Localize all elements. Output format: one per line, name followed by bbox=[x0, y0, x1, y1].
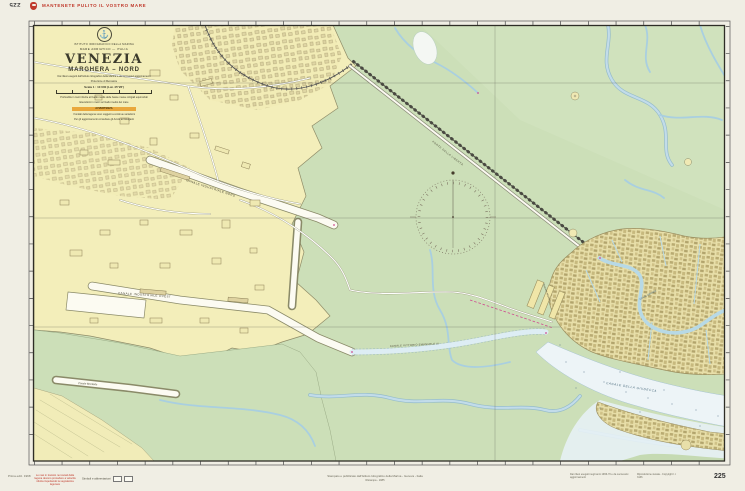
depth-note: Profondità in metri riferite al livello … bbox=[38, 96, 170, 99]
copyright-note: Riproduzione vietata - Copyright I.I. 31… bbox=[637, 473, 681, 479]
chart-subtitle: MARGHERA – NORD bbox=[38, 67, 170, 73]
imprint: Stampato e pubblicato dall'Istituto Idro… bbox=[280, 475, 470, 482]
anchor-emblem-icon: ⚓ bbox=[97, 27, 112, 42]
symbols-note-text: Simboli e abbreviazioni bbox=[82, 476, 111, 480]
region-label: MARE ADRIATICO — ITALIA bbox=[38, 47, 170, 51]
height-note: Elevazioni in metri sul livello medio de… bbox=[38, 101, 170, 104]
advisory-text: I fondali della laguna sono soggetti a c… bbox=[38, 113, 170, 116]
symbols-note: Simboli e abbreviazioni bbox=[82, 476, 133, 482]
symbol-box-icon bbox=[113, 476, 122, 482]
clean-sea-slogan: MANTENETE PULITO IL VOSTRO MARE bbox=[42, 3, 146, 8]
advisory-banner: AVVERTENZA bbox=[72, 107, 136, 111]
clean-sea-icon bbox=[30, 2, 37, 10]
projection-note: Proiezione di Mercatore bbox=[38, 80, 170, 83]
islet bbox=[681, 440, 691, 450]
title-block: ⚓ ISTITUTO IDROGRAFICO DELLA MARINA MARE… bbox=[38, 27, 170, 121]
scale-bar bbox=[56, 90, 152, 94]
symbol-box-icon bbox=[124, 476, 133, 482]
update-note: Per gli aggiornamenti consultare gli Avv… bbox=[38, 118, 170, 121]
chart-number-top: 225 bbox=[9, 1, 21, 7]
survey-note: Dai rilievi eseguiti negli anni 1966-70 … bbox=[570, 473, 632, 479]
imprint-line2: Ristampa - 1985 bbox=[280, 479, 470, 482]
red-warning-note: Le navi in transito nei canali della lag… bbox=[32, 474, 78, 486]
scale-label: Scala 1 : 10 000 (Lat. 45°26') bbox=[38, 85, 170, 89]
chart-title: VENEZIA bbox=[38, 52, 170, 67]
source-note: Dai rilievi eseguiti dall'Istituto Idrog… bbox=[38, 75, 170, 78]
edition-note: Prima ediz. 1968 bbox=[8, 475, 31, 479]
chart-number-bottom: 225 bbox=[714, 473, 726, 480]
